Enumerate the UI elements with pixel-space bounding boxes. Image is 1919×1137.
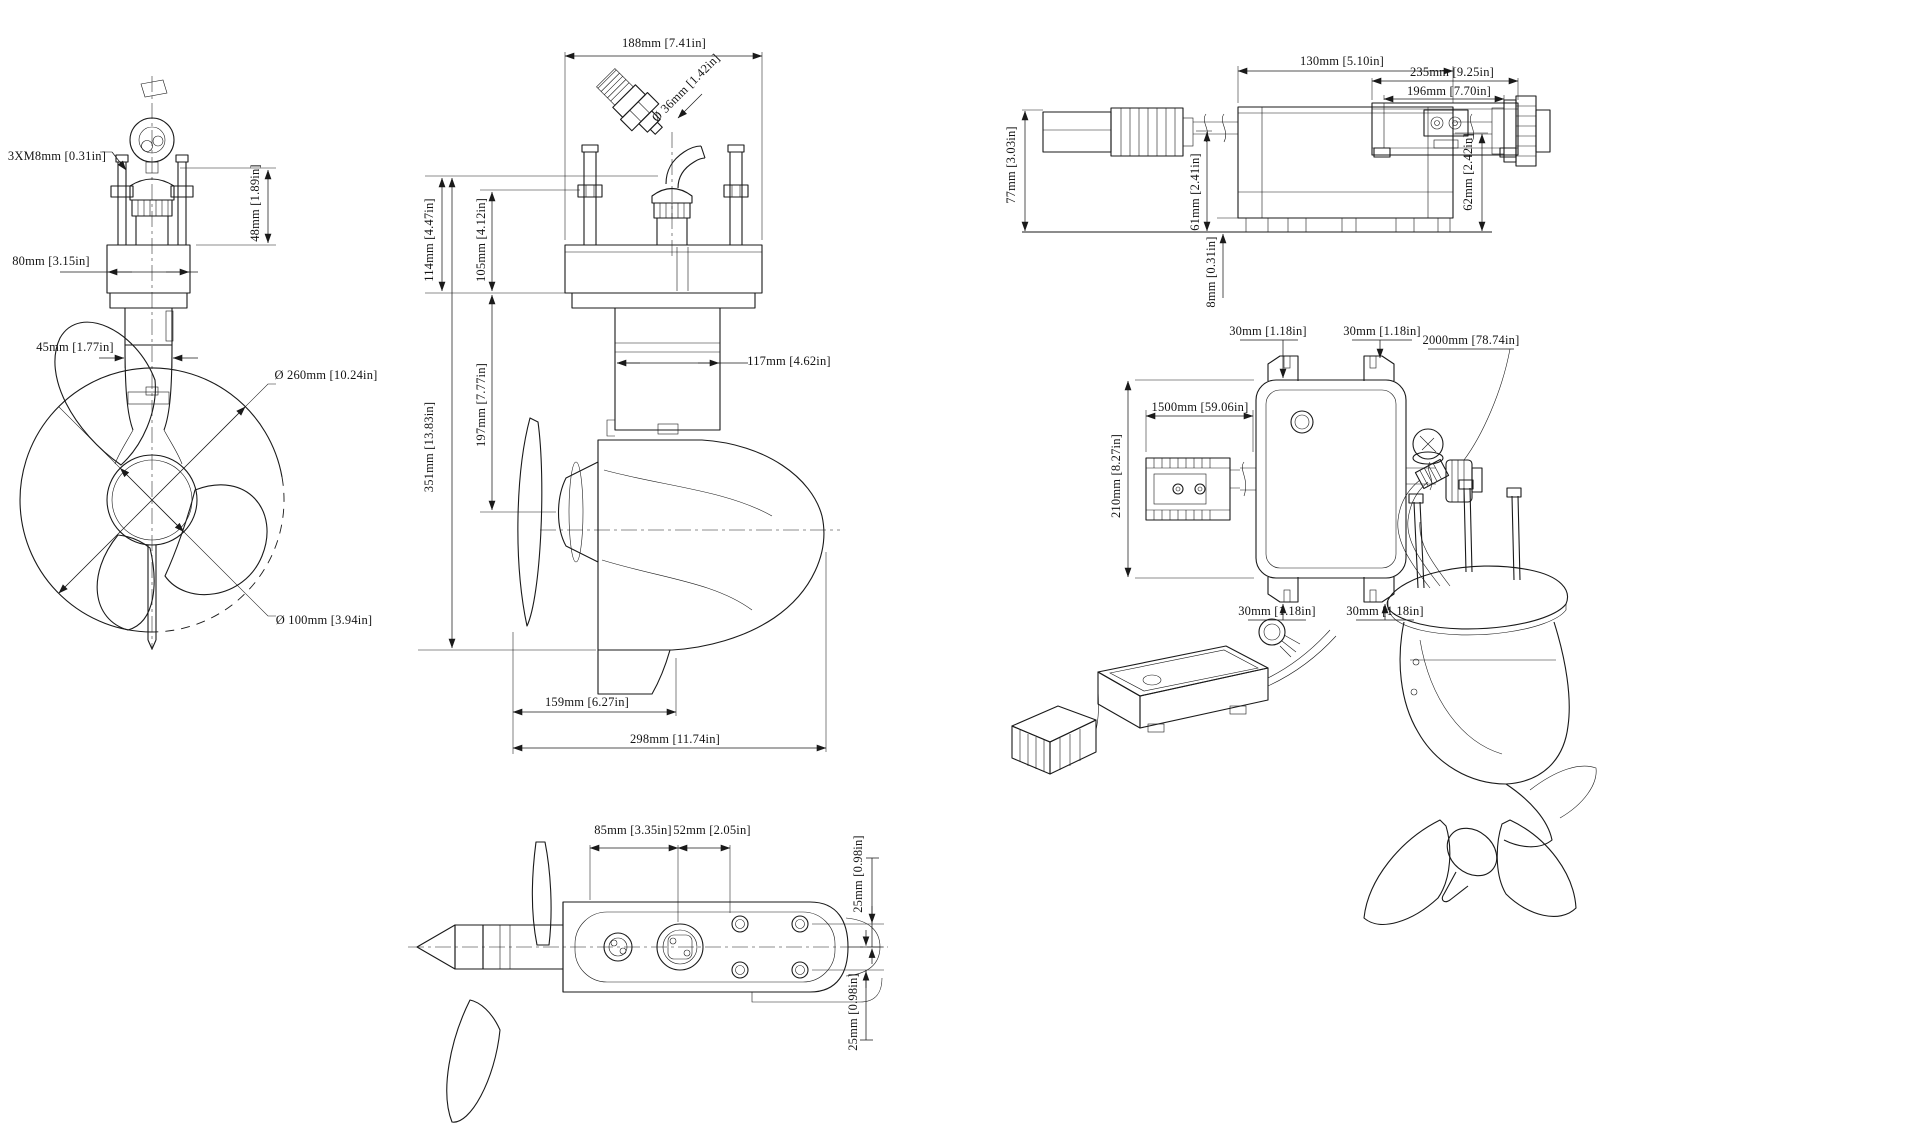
dim-head-height: 48mm [1.89in] [249,164,262,242]
dim-screw-spacing: 52mm [2.05in] [673,824,751,837]
dim-tab-bottom-right: 30mm [1.18in] [1346,605,1424,618]
dim-hub-diameter: Ø 100mm [3.94in] [276,614,373,627]
engineering-drawing-sheet: 3XM8mm [0.31in] 80mm [3.15in] 48mm [1.89… [0,0,1919,1137]
dim-tab-top-right: 30mm [1.18in] [1343,325,1421,338]
dim-controller-top-height: 210mm [8.27in] [1110,434,1123,518]
dim-battery-cable-length: 1500mm [59.06in] [1152,401,1249,414]
dim-screw-offset-lower: 25mm [0.98in] [847,973,860,1051]
isometric-view [1012,429,1596,924]
dim-controller-overall-width: 235mm [9.25in] [1410,66,1494,79]
dim-stud-height: 105mm [4.12in] [475,198,488,282]
dim-foot-height: 8mm [0.31in] [1205,236,1218,307]
dim-clamp-width: 80mm [3.15in] [12,255,90,268]
dim-controller-body-length: 130mm [5.10in] [1300,55,1384,68]
dim-motor-cable-length: 2000mm [78.74in] [1423,334,1520,347]
dim-gearcase-length: 159mm [6.27in] [545,696,629,709]
dim-tab-top-left: 30mm [1.18in] [1229,325,1307,338]
dim-controller-body-width: 196mm [7.70in] [1407,85,1491,98]
dim-overall-length: 298mm [11.74in] [630,733,720,746]
dim-port-spacing: 85mm [3.35in] [594,824,672,837]
dim-connector-height: 62mm [2.42in] [1462,133,1475,211]
dim-mount-bolts: 3XM8mm [0.31in] [8,150,106,163]
dim-propeller-diameter: Ø 260mm [10.24in] [274,369,377,382]
dim-shaft-diameter: 45mm [1.77in] [36,341,114,354]
dim-controller-body-height: 61mm [2.41in] [1189,153,1202,231]
dim-controller-overall-height: 77mm [3.03in] [1005,126,1018,204]
dim-flange-length: 188mm [7.41in] [622,37,706,50]
dim-tab-bottom-left: 30mm [1.18in] [1238,605,1316,618]
dim-overall-height: 351mm [13.83in] [423,402,436,493]
dim-body-width: 117mm [4.62in] [747,355,831,368]
drawing-linework [0,0,1919,1137]
dim-flange-height-total: 114mm [4.47in] [423,198,436,282]
dim-shaft-length: 197mm [7.77in] [475,363,488,447]
controller-top-view [1128,340,1514,620]
dim-screw-offset-upper: 25mm [0.98in] [852,835,865,913]
top-view [408,842,888,1122]
